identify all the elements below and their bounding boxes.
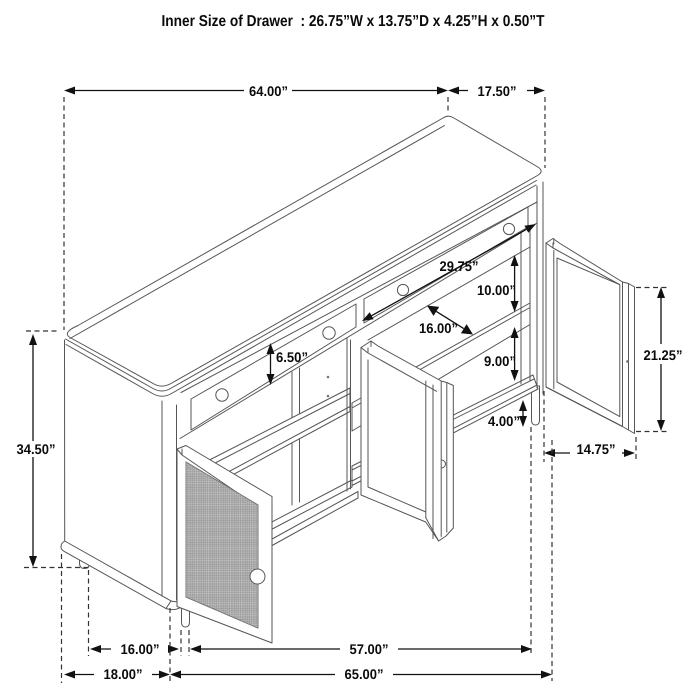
svg-text:16.00”: 16.00” [419, 320, 458, 336]
svg-text:29.75”: 29.75” [440, 258, 479, 274]
svg-text:34.50”: 34.50” [17, 441, 56, 457]
svg-text:9.00”: 9.00” [484, 353, 516, 369]
svg-text:57.00”: 57.00” [350, 641, 389, 657]
svg-text:16.00”: 16.00” [121, 641, 160, 657]
svg-text:6.50”: 6.50” [276, 349, 308, 365]
svg-text:21.25”: 21.25” [644, 347, 683, 363]
svg-text:17.50”: 17.50” [478, 83, 517, 99]
svg-text:Inner Size of Drawer : 26.75”: Inner Size of Drawer : 26.75”W x 13.75”D… [162, 13, 545, 30]
svg-text:65.00”: 65.00” [345, 666, 384, 682]
svg-text:18.00”: 18.00” [104, 666, 143, 682]
svg-text:4.00”: 4.00” [488, 413, 520, 429]
svg-text:64.00”: 64.00” [249, 83, 288, 99]
svg-text:14.75”: 14.75” [577, 441, 616, 457]
svg-text:10.00”: 10.00” [477, 282, 516, 298]
